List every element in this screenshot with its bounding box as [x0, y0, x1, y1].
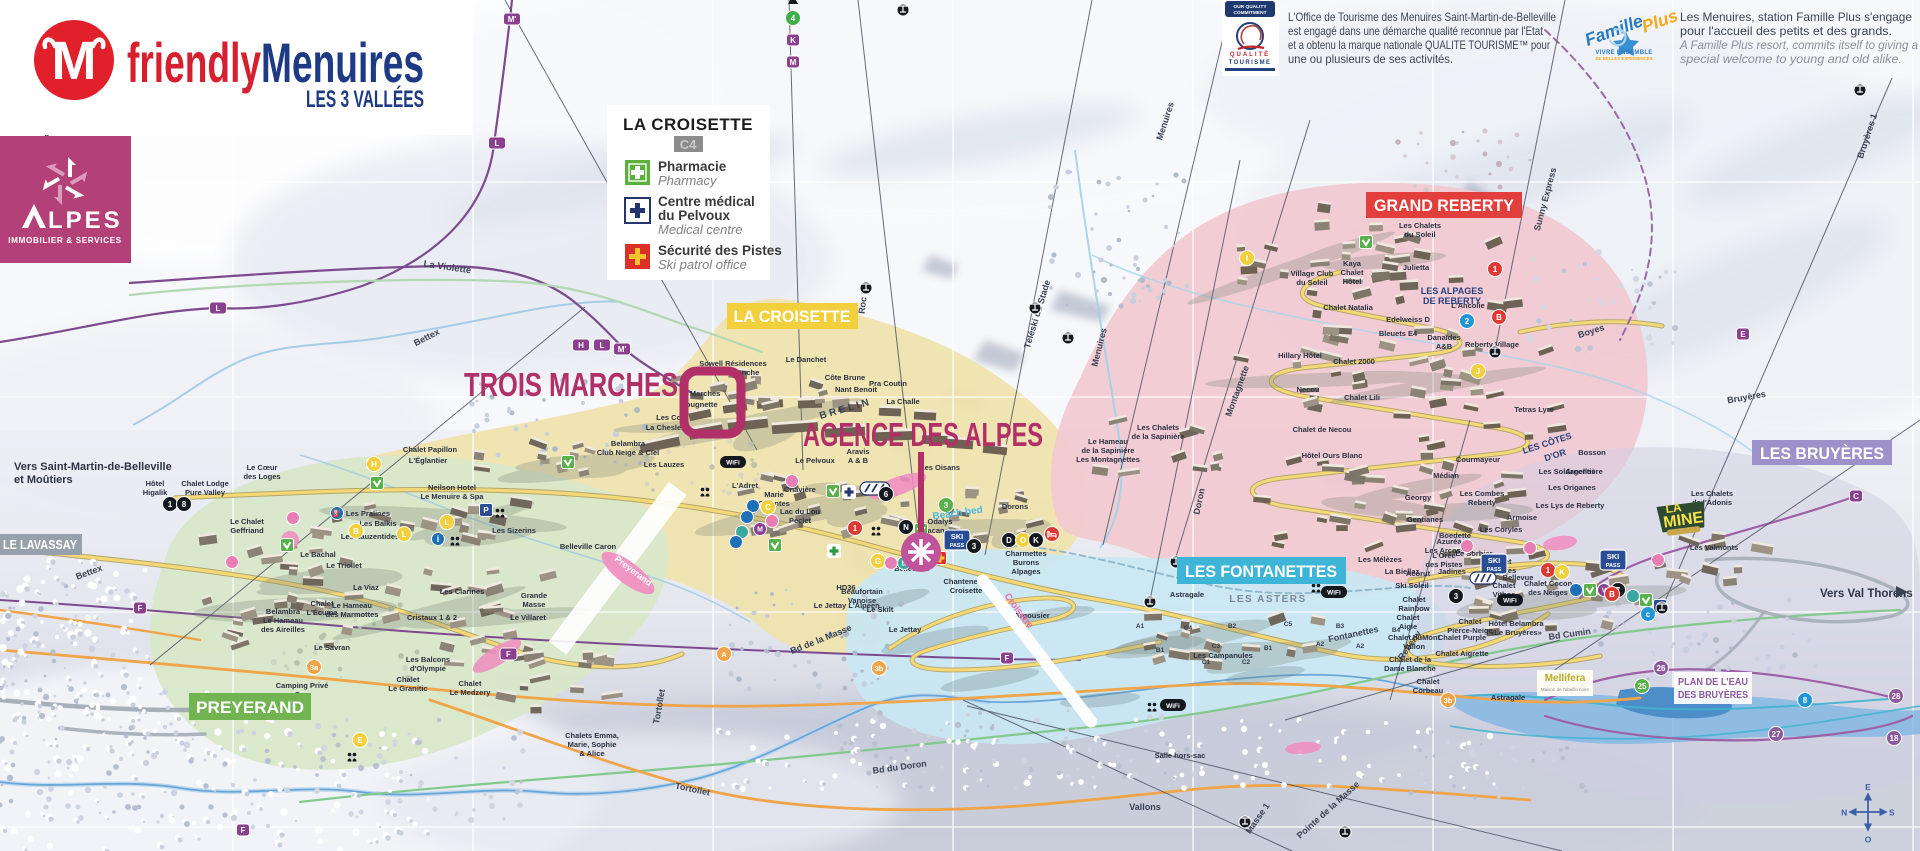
svg-text:SKI: SKI — [1607, 552, 1620, 561]
svg-text:IMMOBILIER & SERVICES: IMMOBILIER & SERVICES — [8, 236, 121, 245]
svg-text:F: F — [1005, 654, 1010, 663]
svg-text:B1: B1 — [1156, 647, 1165, 654]
svg-text:Salle hors-sac: Salle hors-sac — [1155, 751, 1206, 760]
svg-text:Pure Valley: Pure Valley — [185, 488, 226, 497]
svg-text:M: M — [790, 58, 797, 67]
svg-text:Village Club: Village Club — [1291, 269, 1334, 278]
svg-text:Le Chalet: Le Chalet — [230, 517, 264, 526]
svg-text:de la Sapinière: de la Sapinière — [1132, 432, 1185, 441]
svg-text:C5: C5 — [1284, 621, 1293, 628]
svg-text:PREYERAND: PREYERAND — [196, 698, 304, 717]
svg-text:Chalet de Necou: Chalet de Necou — [1293, 425, 1352, 434]
svg-text:A2: A2 — [1356, 643, 1365, 650]
svg-text:B: B — [1609, 590, 1615, 599]
svg-text:C4: C4 — [1184, 625, 1193, 632]
svg-text:PASS: PASS — [950, 543, 965, 549]
svg-text:des Aireilles: des Aireilles — [261, 625, 305, 634]
svg-text:Edelweiss D: Edelweiss D — [1386, 315, 1430, 324]
svg-text:LA CROISETTE: LA CROISETTE — [623, 115, 753, 134]
svg-text:Le Medzery: Le Medzery — [450, 688, 492, 697]
svg-text:F: F — [138, 604, 143, 613]
svg-text:Club Neige & Ciel: Club Neige & Ciel — [597, 448, 660, 457]
svg-text:L: L — [216, 304, 221, 313]
svg-text:K: K — [1033, 536, 1039, 545]
svg-text:L'Office de Tourisme des Menui: L'Office de Tourisme des Menuires Saint-… — [1288, 10, 1556, 24]
svg-text:Le Hameau: Le Hameau — [263, 616, 303, 625]
svg-text:Les Chalets: Les Chalets — [1399, 221, 1441, 230]
svg-text:Gentianes: Gentianes — [1407, 515, 1443, 524]
svg-text:Les Mélèzes: Les Mélèzes — [1358, 555, 1402, 564]
svg-text:A2: A2 — [1316, 641, 1325, 648]
svg-text:Ski patrol office: Ski patrol office — [658, 257, 747, 272]
svg-text:LES FONTANETTES: LES FONTANETTES — [1185, 562, 1337, 581]
svg-text:Hôtel Ours Blanc: Hôtel Ours Blanc — [1302, 451, 1363, 460]
svg-text:des Loges: des Loges — [243, 472, 280, 481]
svg-text:Médian: Médian — [1433, 471, 1459, 480]
svg-text:3: 3 — [972, 542, 977, 551]
svg-text:Burons: Burons — [1013, 558, 1039, 567]
svg-text:Chalet: Chalet — [1417, 677, 1440, 686]
svg-text:Pharmacy: Pharmacy — [658, 173, 718, 188]
svg-text:Mellifera: Mellifera — [1545, 673, 1586, 684]
svg-text:Chalet duMont: Chalet duMont — [1388, 633, 1441, 642]
svg-text:B3: B3 — [1336, 623, 1345, 630]
svg-text:Necou: Necou — [1297, 385, 1320, 394]
svg-text:Marie, Sophie: Marie, Sophie — [568, 740, 617, 749]
svg-text:F: F — [506, 650, 511, 659]
svg-text:Dame Blanche: Dame Blanche — [1384, 664, 1436, 673]
svg-text:Armoise: Armoise — [1507, 513, 1537, 522]
svg-text:c: c — [1646, 610, 1651, 619]
svg-text:Chalet Aigrette: Chalet Aigrette — [1435, 649, 1488, 658]
svg-text:Jadines: Jadines — [1438, 567, 1466, 576]
svg-text:B2: B2 — [1228, 623, 1237, 630]
svg-text:C4: C4 — [680, 137, 697, 152]
svg-text:M': M' — [508, 15, 517, 24]
svg-text:Bosson: Bosson — [1578, 448, 1606, 457]
svg-text:L: L — [445, 518, 450, 527]
svg-text:8: 8 — [182, 500, 187, 509]
svg-text:Georgy: Georgy — [1405, 493, 1432, 502]
svg-text:Chalet Papillon: Chalet Papillon — [403, 445, 458, 454]
svg-text:Astragale: Astragale — [1491, 693, 1525, 702]
svg-text:Le Menuire & Spa: Le Menuire & Spa — [421, 492, 485, 501]
svg-text:Maison de l'abeille noire: Maison de l'abeille noire — [1541, 687, 1590, 692]
svg-text:friendlyMenuires: friendlyMenuires — [127, 31, 424, 94]
svg-text:GRAND REBERTY: GRAND REBERTY — [1374, 196, 1515, 215]
svg-text:Cristaux 1 & 2: Cristaux 1 & 2 — [407, 613, 457, 622]
svg-text:Les Balcons: Les Balcons — [406, 655, 450, 664]
svg-text:Chalet Lili: Chalet Lili — [1344, 393, 1380, 402]
svg-text:B: B — [353, 527, 359, 536]
svg-text:Acorut: Acorut — [1406, 569, 1431, 578]
svg-text:3a: 3a — [310, 663, 319, 672]
svg-text:K: K — [790, 36, 796, 45]
svg-text:E: E — [357, 736, 363, 745]
svg-text:Kaya: Kaya — [1343, 259, 1362, 268]
svg-text:LE LAVASSAY: LE LAVASSAY — [3, 537, 77, 552]
svg-text:LPES: LPES — [48, 207, 123, 234]
svg-text:Chalet: Chalet — [1459, 617, 1482, 626]
svg-text:Le Cœur: Le Cœur — [247, 463, 278, 472]
svg-text:Marie: Marie — [764, 490, 784, 499]
svg-text:Croisette: Croisette — [950, 586, 983, 595]
svg-text:une ou plusieurs de ses activi: une ou plusieurs de ses activités. — [1288, 52, 1453, 66]
svg-text:Le Bachal: Le Bachal — [300, 550, 335, 559]
svg-text:Chalet: Chalet — [1493, 581, 1516, 590]
svg-text:Vallon: Vallon — [1403, 642, 1426, 651]
svg-text:WiFi: WiFi — [1503, 598, 1517, 605]
svg-text:28: 28 — [1892, 692, 1901, 701]
svg-text:des Marmottes: des Marmottes — [326, 610, 379, 619]
svg-text:Le Jettay: Le Jettay — [889, 625, 922, 634]
svg-text:LA CROISETTE: LA CROISETTE — [734, 307, 851, 326]
svg-text:A&B: A&B — [1436, 342, 1453, 351]
svg-text:WiFi: WiFi — [726, 460, 740, 467]
svg-text:N: N — [1841, 807, 1847, 817]
svg-text:Hôtel: Hôtel — [1343, 277, 1362, 286]
svg-text:Courmayeur: Courmayeur — [1456, 455, 1500, 464]
svg-text:E: E — [1865, 782, 1871, 792]
svg-text:Hôtel Belambra: Hôtel Belambra — [1488, 619, 1544, 628]
svg-text:L'Orée: L'Orée — [1432, 551, 1455, 560]
svg-text:P: P — [483, 506, 489, 515]
svg-text:Le Villaret: Le Villaret — [510, 613, 546, 622]
svg-text:Alpages: Alpages — [1011, 567, 1040, 576]
svg-text:Aigle: Aigle — [1399, 622, 1417, 631]
svg-text:Les Pralines: Les Pralines — [346, 509, 390, 518]
svg-text:M: M — [757, 527, 763, 534]
svg-text:C: C — [1853, 492, 1859, 501]
svg-text:Bellevue: Bellevue — [1503, 573, 1534, 582]
svg-text:et a obtenu la marque national: et a obtenu la marque nationale QUALITE … — [1288, 38, 1550, 52]
svg-text:& Alice: & Alice — [579, 749, 604, 758]
svg-text:H: H — [578, 341, 584, 350]
svg-text:La Viaz: La Viaz — [353, 583, 379, 592]
svg-text:S: S — [1889, 807, 1895, 817]
svg-text:Neilson Hotel: Neilson Hotel — [428, 483, 476, 492]
svg-text:LES ASTERS: LES ASTERS — [1229, 594, 1306, 605]
svg-text:C3: C3 — [1212, 643, 1221, 650]
svg-text:3b: 3b — [1444, 696, 1453, 705]
svg-text:M: M — [52, 31, 97, 91]
svg-text:Bleuets E4: Bleuets E4 — [1379, 329, 1418, 338]
svg-text:Les Montagnettes: Les Montagnettes — [1076, 455, 1140, 464]
svg-text:de la Sapinière: de la Sapinière — [1082, 446, 1135, 455]
svg-text:WiFi: WiFi — [1166, 703, 1180, 710]
svg-text:Hillary Hôtel: Hillary Hôtel — [1278, 351, 1322, 360]
svg-text:AGENCE DES ALPES: AGENCE DES ALPES — [803, 416, 1043, 453]
svg-text:Centre médical: Centre médical — [658, 194, 755, 209]
svg-text:A1: A1 — [1136, 623, 1145, 630]
svg-text:Belleville Caron: Belleville Caron — [560, 542, 617, 551]
svg-text:C2: C2 — [1242, 659, 1251, 666]
svg-text:Les Chalets: Les Chalets — [1691, 489, 1733, 498]
svg-text:L'Églantier: L'Églantier — [409, 456, 448, 465]
svg-text:pour l'accueil des petits et d: pour l'accueil des petits et des grands. — [1680, 24, 1892, 38]
svg-text:Le Savran: Le Savran — [314, 643, 350, 652]
svg-text:DES BRUYÈRES: DES BRUYÈRES — [1678, 688, 1748, 701]
svg-text:Dorons: Dorons — [1002, 502, 1028, 511]
svg-text:Reberty: Reberty — [1468, 498, 1497, 507]
svg-text:du Soleil: du Soleil — [1296, 278, 1327, 287]
svg-text:Belambra: Belambra — [266, 607, 301, 616]
svg-text:Le Pelvoux: Le Pelvoux — [795, 456, 835, 465]
svg-text:SKI: SKI — [1488, 556, 1501, 565]
svg-text:Les Chalets: Les Chalets — [1137, 423, 1179, 432]
svg-text:Sécurité des Pistes: Sécurité des Pistes — [658, 243, 782, 258]
svg-text:Danaïdes: Danaïdes — [1427, 333, 1460, 342]
svg-text:Geffriand: Geffriand — [230, 526, 264, 535]
svg-text:Les Lauzes: Les Lauzes — [644, 460, 684, 469]
svg-text:Chalet 2000: Chalet 2000 — [1333, 357, 1375, 366]
svg-text:Les Sizerins: Les Sizerins — [492, 526, 536, 535]
svg-text:Les Menuires, station Famille: Les Menuires, station Famille Plus s'eng… — [1680, 10, 1912, 24]
svg-text:QUALITÉ: QUALITÉ — [1230, 50, 1270, 58]
svg-text:Charmettes: Charmettes — [1005, 549, 1046, 558]
svg-text:Chalet: Chalet — [1403, 595, 1426, 604]
svg-text:Chalet Lodge: Chalet Lodge — [181, 479, 229, 488]
svg-text:Chalet: Chalet — [1397, 613, 1420, 622]
svg-text:«Le Bruyères»: «Le Bruyères» — [1490, 628, 1542, 637]
svg-text:OUR QUALITY: OUR QUALITY — [1233, 4, 1267, 10]
svg-text:Chalet: Chalet — [459, 679, 482, 688]
svg-text:F: F — [241, 826, 246, 835]
svg-text:M': M' — [618, 345, 627, 354]
svg-text:18: 18 — [1890, 734, 1899, 743]
svg-text:L: L — [600, 341, 605, 350]
svg-text:26: 26 — [1657, 664, 1666, 673]
svg-text:O: O — [1020, 536, 1026, 545]
svg-text:C1: C1 — [1202, 659, 1211, 666]
svg-text:A & B: A & B — [848, 456, 869, 465]
svg-text:Rainbow: Rainbow — [1398, 604, 1429, 613]
svg-text:Les Clarines: Les Clarines — [440, 587, 485, 596]
svg-text:LES ALPAGES: LES ALPAGES — [1421, 286, 1484, 296]
svg-text:DE REBERTY: DE REBERTY — [1423, 296, 1481, 306]
svg-text:B4: B4 — [1392, 627, 1401, 634]
svg-text:Belambra: Belambra — [611, 439, 646, 448]
svg-text:Medical centre: Medical centre — [658, 222, 743, 237]
svg-text:Higalik: Higalik — [143, 488, 168, 497]
svg-text:C: C — [765, 503, 771, 512]
svg-text:Chalet: Chalet — [1341, 268, 1364, 277]
svg-text:d'Olympie: d'Olympie — [410, 664, 446, 673]
svg-text:O: O — [1865, 835, 1872, 845]
svg-text:B1: B1 — [1264, 645, 1273, 652]
svg-text:Corbeau: Corbeau — [1413, 686, 1444, 695]
svg-text:du Pelvoux: du Pelvoux — [658, 208, 731, 223]
svg-text:Julietta: Julietta — [1403, 263, 1430, 272]
svg-text:3: 3 — [1454, 592, 1459, 601]
svg-text:HD36: HD36 — [836, 583, 855, 592]
svg-text:L: L — [402, 530, 407, 539]
svg-text:LES BRUYÈRES: LES BRUYÈRES — [1760, 444, 1884, 463]
svg-text:6: 6 — [884, 490, 889, 499]
svg-text:Astragale: Astragale — [1170, 590, 1204, 599]
svg-text:N: N — [903, 523, 909, 532]
svg-text:TROIS MARCHES: TROIS MARCHES — [464, 366, 678, 403]
svg-text:K: K — [1559, 568, 1565, 577]
svg-text:Les Lys de Reberty: Les Lys de Reberty — [1536, 501, 1605, 510]
svg-text:Le Hameau: Le Hameau — [1088, 437, 1128, 446]
svg-text:Les Balkis: Les Balkis — [359, 519, 396, 528]
svg-text:Chalet: Chalet — [311, 599, 334, 608]
svg-text:DE BELLES EXPÉRIENCES: DE BELLES EXPÉRIENCES — [1595, 56, 1652, 61]
svg-text:Tetras Lyre: Tetras Lyre — [1514, 405, 1554, 414]
svg-text:3b: 3b — [875, 664, 884, 673]
svg-text:et Moûtiers: et Moûtiers — [14, 474, 73, 486]
svg-text:🛏: 🛏 — [1047, 530, 1057, 539]
svg-text:Les Combes: Les Combes — [1460, 489, 1505, 498]
svg-text:Chalet: Chalet — [397, 675, 420, 684]
svg-text:PLAN DE L'EAU: PLAN DE L'EAU — [1678, 677, 1748, 688]
svg-text:des Neiges: des Neiges — [1528, 588, 1568, 597]
svg-text:L'Alpeen: L'Alpeen — [848, 601, 880, 610]
svg-text:Chalets Emma,: Chalets Emma, — [565, 731, 619, 740]
svg-text:PASS: PASS — [1606, 563, 1621, 569]
svg-text:E: E — [1740, 330, 1746, 339]
svg-text:J: J — [1476, 367, 1480, 376]
svg-text:1: 1 — [853, 524, 858, 533]
svg-text:La Challe: La Challe — [886, 397, 919, 406]
svg-text:Le Danchet: Le Danchet — [786, 355, 827, 364]
svg-text:⛽: ⛽ — [333, 509, 342, 518]
svg-text:Camping Privé: Camping Privé — [276, 681, 329, 690]
svg-text:du Soleil: du Soleil — [1404, 230, 1435, 239]
svg-text:4: 4 — [791, 14, 796, 23]
svg-text:Le Jettay: Le Jettay — [814, 601, 847, 610]
svg-text:est engagé dans une démarche q: est engagé dans une démarche qualité rec… — [1288, 24, 1544, 38]
svg-text:Pierce-Neige: Pierce-Neige — [1447, 626, 1492, 635]
svg-text:L: L — [495, 139, 500, 148]
svg-text:Hôtel: Hôtel — [146, 479, 165, 488]
svg-text:Le Hameau: Le Hameau — [332, 601, 372, 610]
svg-text:Boedette: Boedette — [1439, 531, 1471, 540]
svg-text:D: D — [1006, 536, 1012, 545]
svg-text:Vers Saint-Martin-de-Bellevill: Vers Saint-Martin-de-Belleville — [14, 461, 172, 473]
svg-text:L'Adret: L'Adret — [732, 481, 758, 490]
svg-text:special welcome to young and o: special welcome to young and old alike. — [1680, 52, 1902, 66]
svg-text:Ski Soleil: Ski Soleil — [1395, 581, 1428, 590]
svg-text:Le Triollet: Le Triollet — [326, 561, 362, 570]
svg-text:Les Coryles: Les Coryles — [1480, 525, 1523, 534]
svg-text:8: 8 — [1803, 696, 1808, 705]
svg-text:Le Granitic: Le Granitic — [388, 684, 427, 693]
svg-text:COMMITMENT: COMMITMENT — [1233, 10, 1266, 16]
svg-text:Les Soldanelles: Les Soldanelles — [1539, 467, 1596, 476]
svg-text:Les Oisans: Les Oisans — [920, 463, 960, 472]
svg-text:Côte Brune: Côte Brune — [825, 373, 865, 382]
svg-text:G: G — [875, 557, 881, 566]
svg-text:Les Valmonts: Les Valmonts — [1690, 543, 1738, 552]
svg-text:3 Marches: 3 Marches — [684, 389, 721, 398]
svg-text:1: 1 — [168, 500, 173, 509]
svg-text:Chalet Natalia: Chalet Natalia — [1323, 303, 1373, 312]
svg-text:Peclet: Peclet — [789, 516, 812, 525]
svg-text:H: H — [371, 460, 377, 469]
svg-text:Pharmacie: Pharmacie — [658, 159, 727, 174]
svg-text:i: i — [437, 534, 440, 544]
svg-text:A Famille Plus resort, commits: A Famille Plus resort, commits itself to… — [1679, 38, 1918, 52]
svg-text:TOURISME: TOURISME — [1229, 60, 1272, 66]
svg-text:Masse: Masse — [523, 600, 546, 609]
svg-text:Lac du Lou: Lac du Lou — [780, 507, 820, 516]
svg-text:25: 25 — [1638, 682, 1647, 691]
svg-text:Pra Coutin: Pra Coutin — [869, 379, 907, 388]
svg-text:B: B — [1496, 313, 1502, 322]
svg-text:27: 27 — [1772, 730, 1781, 739]
svg-text:A: A — [721, 650, 727, 659]
svg-text:Grande: Grande — [521, 591, 547, 600]
svg-text:Chalet de la: Chalet de la — [1389, 655, 1432, 664]
svg-text:2: 2 — [1465, 317, 1470, 326]
svg-text:LES 3 VALLÉES: LES 3 VALLÉES — [306, 85, 424, 113]
svg-text:1: 1 — [1546, 566, 1551, 575]
svg-text:Vallons: Vallons — [1129, 802, 1161, 812]
svg-text:I: I — [1246, 254, 1248, 263]
svg-text:WiFi: WiFi — [1327, 590, 1341, 597]
svg-text:1: 1 — [1493, 265, 1498, 274]
svg-text:SKI: SKI — [951, 532, 964, 541]
svg-text:Les Origanes: Les Origanes — [1548, 483, 1596, 492]
